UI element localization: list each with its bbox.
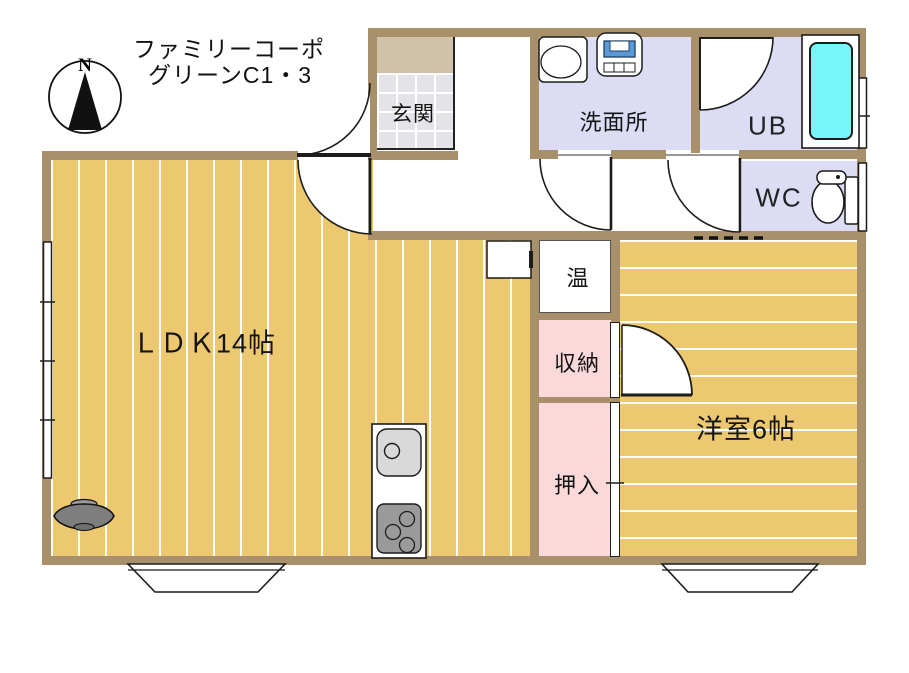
washroom-door-arc (540, 157, 611, 230)
unit-bath-label: UB (748, 111, 788, 142)
wall-right (857, 28, 866, 565)
wall-washroom-bath-divider (691, 36, 700, 153)
wc-door-arc (668, 158, 740, 232)
wall-entrance-left (368, 28, 377, 160)
entrance-label: 玄関 (391, 98, 435, 128)
entrance-step (377, 37, 454, 74)
floor-plan: ファミリーコーポ グリーンC1・3 N 玄関 洗面所 UB WC 温 収納 押入… (0, 0, 909, 673)
wall-block-left (530, 231, 539, 557)
bedroom-bay-window (662, 564, 818, 592)
front-door-arc (297, 83, 371, 155)
bedroom-floor (620, 240, 857, 557)
wall-mid-b (611, 150, 666, 159)
washroom-label: 洗面所 (579, 105, 648, 137)
storage-sliding-door (610, 322, 620, 398)
storage-label: 収納 (554, 346, 600, 378)
ldk-bay-window (128, 564, 285, 592)
wall-closet-top (530, 397, 620, 403)
wall-bottom (42, 556, 866, 565)
wc-door-threshold (666, 154, 739, 156)
wall-mid-c (739, 150, 858, 159)
entrance-edge-line (453, 37, 455, 150)
wall-washroom-left (530, 36, 539, 153)
plan-title-line2: グリーンC1・3 (148, 56, 312, 90)
closet-label: 押入 (554, 468, 600, 500)
closet-sliding-door (610, 402, 620, 557)
wall-mid-a (530, 150, 558, 159)
corridor (373, 160, 530, 231)
compass-north-label: N (75, 55, 95, 77)
wall-top-left (42, 151, 298, 160)
bedroom-label: 洋室6帖 (696, 408, 796, 447)
wall-storage-top (530, 313, 620, 320)
wall-top (368, 28, 866, 37)
wc-label: WC (755, 183, 802, 214)
ldk-label: ＬＤＫ14帖 (132, 322, 276, 361)
wall-left (42, 151, 51, 565)
wall-block-right (611, 231, 620, 323)
water-heater-label: 温 (566, 261, 589, 293)
wall-under-entrance (368, 151, 458, 160)
washroom-door-threshold (558, 154, 611, 156)
